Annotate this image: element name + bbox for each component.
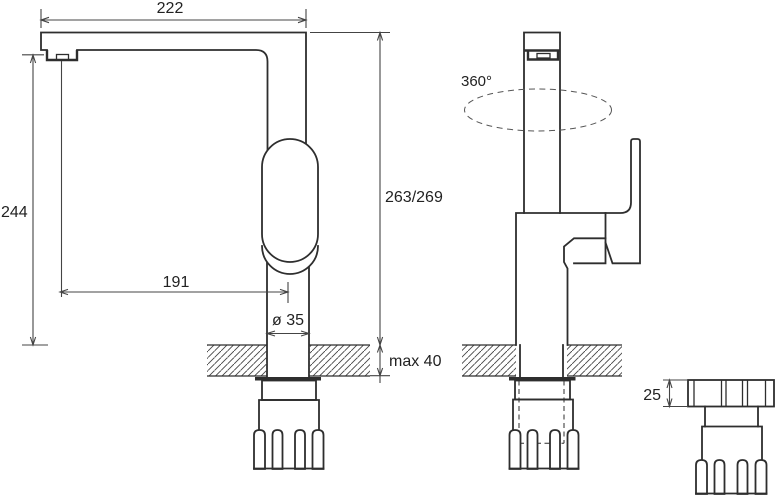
mounting-nut-detail: 25 [643,380,774,494]
washer [262,381,316,401]
side-view: 222 244 191 ø 35 263/269 [1,0,443,469]
knurled-nut [688,380,774,407]
swivel-indicator: 360° [461,73,612,131]
dimension-spout-length: 222 [41,0,306,28]
nut-body [702,427,762,461]
dim-d35-label: ø 35 [272,312,304,329]
dimension-nut-height: 25 [643,380,688,407]
dim-222-label: 222 [157,0,184,17]
dimension-base-diameter: ø 35 [267,312,309,336]
spout-outline [41,33,306,153]
countertop-section-right [462,345,622,376]
spout-front [524,33,560,214]
nut-neck [705,407,758,427]
connector-body [259,400,319,430]
cartridge-edge [574,243,606,264]
faucet-technical-drawing: 222 244 191 ø 35 263/269 [0,0,777,498]
countertop-section-left [207,345,370,376]
dim-25-label: 25 [643,387,661,404]
front-view: 360° [461,33,640,470]
dimension-spout-reach: 191 [60,61,288,303]
dimension-outlet-height: 244 [1,55,48,345]
lever-handle-side [262,139,318,274]
dimension-body-height: 263/269 [310,33,443,346]
mounting-hardware-left [254,377,324,469]
dim-244-label: 244 [1,204,28,221]
swivel-angle-label: 360° [461,73,492,90]
body-and-lever-front [516,139,640,345]
technical-drawing-page: 222 244 191 ø 35 263/269 [0,0,777,498]
dim-191-label: 191 [163,274,190,291]
dim-263-269-label: 263/269 [385,189,443,206]
dim-max40-label: max 40 [389,353,442,370]
rotation-ellipse-icon [465,89,612,131]
washer-front [515,381,570,400]
